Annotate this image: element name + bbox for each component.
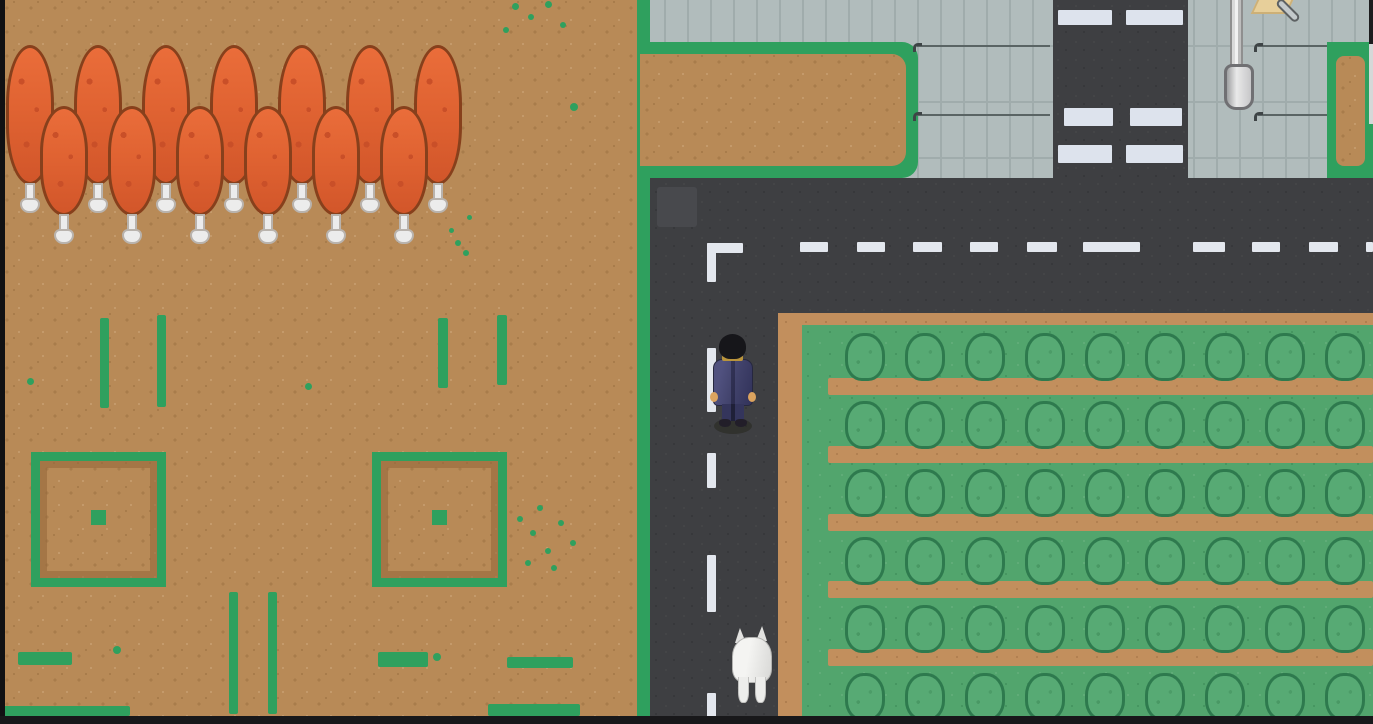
- crop-bush: [1265, 537, 1305, 585]
- pavement-corner-mark: [1254, 112, 1263, 121]
- tree: [312, 106, 360, 248]
- lane-dash: [1252, 242, 1280, 252]
- crop-bush: [845, 537, 885, 585]
- grass-dot: [570, 540, 576, 546]
- grass-tuft: [268, 592, 277, 714]
- lane-dash: [1309, 242, 1338, 252]
- crop-bush: [965, 333, 1005, 381]
- crop-bush: [1085, 537, 1125, 585]
- crop-bush: [905, 605, 945, 653]
- dog-leg-right: [755, 677, 766, 703]
- crop-bush: [1205, 469, 1245, 517]
- crop-bush: [1205, 673, 1245, 721]
- grass-dot: [570, 103, 578, 111]
- pavement-seam: [917, 45, 1050, 47]
- tree-trunk: [20, 183, 40, 215]
- grass-tuft: [378, 652, 428, 667]
- grass-dot: [528, 14, 534, 20]
- crop-bush: [845, 469, 885, 517]
- garden-plot: [372, 452, 507, 587]
- crop-bush: [1025, 469, 1065, 517]
- pavement-corner-mark: [1254, 43, 1263, 52]
- grass-tuft: [497, 315, 507, 385]
- grass-dot: [467, 215, 472, 220]
- tree-trunk: [394, 214, 414, 246]
- tree-canopy: [244, 106, 292, 216]
- lane-dash: [707, 453, 716, 488]
- crop-bush: [1025, 537, 1065, 585]
- crop-bush: [1325, 469, 1365, 517]
- crop-bush: [1205, 401, 1245, 449]
- screen-edge-bottom: [0, 716, 1373, 724]
- tree-trunk: [190, 214, 210, 246]
- crop-bush: [965, 401, 1005, 449]
- crosswalk-stripe: [1126, 10, 1183, 25]
- player-shoe-left: [719, 419, 731, 427]
- grass-dot: [113, 646, 121, 654]
- lane-dash: [1366, 242, 1373, 252]
- crosswalk-stripe: [1126, 145, 1183, 163]
- player-body: [713, 359, 753, 406]
- grass-tuft: [438, 318, 448, 388]
- lane-line-corner: [707, 243, 716, 282]
- plaza-grass-dirt: [1336, 56, 1365, 166]
- crop-bush: [1265, 605, 1305, 653]
- grass-dot: [545, 1, 552, 8]
- crop-bush: [845, 605, 885, 653]
- grass-dot: [545, 548, 551, 554]
- tree-trunk: [292, 183, 312, 215]
- grass-tuft: [100, 318, 109, 408]
- tree-trunk: [224, 183, 244, 215]
- player-shoe-right: [735, 419, 747, 427]
- dog-sprite[interactable]: [730, 626, 774, 704]
- crop-bush: [1085, 605, 1125, 653]
- player-sprite[interactable]: [711, 334, 755, 436]
- crop-bush: [845, 401, 885, 449]
- tree-trunk: [428, 183, 448, 215]
- crop-bush: [1145, 333, 1185, 381]
- grass-tuft: [488, 704, 580, 716]
- tree-canopy: [108, 106, 156, 216]
- crop-bush: [965, 469, 1005, 517]
- tree: [380, 106, 428, 248]
- screen-edge-right-dark: [1369, 0, 1373, 44]
- grass-dot: [27, 378, 34, 385]
- lane-dash: [1027, 242, 1057, 252]
- grass-dot: [449, 228, 454, 233]
- crop-bush: [1205, 537, 1245, 585]
- crop-bush: [1325, 673, 1365, 721]
- crop-bush: [1265, 673, 1305, 721]
- crop-bush: [1205, 333, 1245, 381]
- grass-dot: [560, 22, 566, 28]
- grass-dot: [525, 560, 531, 566]
- grass-dot: [463, 250, 469, 256]
- tree-trunk: [326, 214, 346, 246]
- lane-dash: [857, 242, 885, 252]
- tree-canopy: [176, 106, 224, 216]
- lane-dash: [913, 242, 942, 252]
- crop-bush: [845, 333, 885, 381]
- grass-dot: [537, 505, 543, 511]
- grass-dot: [517, 516, 523, 522]
- grass-dot: [305, 383, 312, 390]
- crop-bush: [965, 537, 1005, 585]
- tree: [108, 106, 156, 248]
- crop-bush: [1085, 673, 1125, 721]
- crosswalk-stripe: [1058, 10, 1112, 25]
- tree: [40, 106, 88, 248]
- lane-dash: [800, 242, 828, 252]
- tree-trunk: [156, 183, 176, 215]
- crop-bush: [1145, 537, 1185, 585]
- tree-canopy: [380, 106, 428, 216]
- crop-bush: [1265, 401, 1305, 449]
- crop-bush: [1025, 401, 1065, 449]
- screen-edge-right-light: [1369, 44, 1373, 124]
- grass-dot: [551, 565, 557, 571]
- pavement-seam: [917, 114, 1050, 116]
- crop-bush: [1325, 401, 1365, 449]
- grass-dot: [512, 3, 519, 10]
- crop-bush: [1325, 333, 1365, 381]
- crop-bush: [905, 537, 945, 585]
- game-viewport: [0, 0, 1373, 724]
- crop-bush: [1145, 673, 1185, 721]
- crop-bush: [965, 673, 1005, 721]
- crop-bush: [1085, 401, 1125, 449]
- grass-dot: [503, 27, 509, 33]
- grass-tuft: [229, 592, 238, 714]
- dirt-path: [637, 42, 918, 178]
- plot-center-dot: [432, 510, 447, 525]
- player-hand-right: [748, 392, 756, 402]
- farm-border-left: [778, 313, 802, 724]
- lamp-base: [1224, 64, 1254, 110]
- crop-bush: [1025, 673, 1065, 721]
- grass-dot: [455, 240, 461, 246]
- crop-bush: [1025, 333, 1065, 381]
- grass-tuft: [0, 706, 130, 716]
- tree-trunk: [88, 183, 108, 215]
- crop-bush: [1085, 469, 1125, 517]
- lane-dash: [1083, 242, 1140, 252]
- crop-bush: [1025, 605, 1065, 653]
- pavement-corner-mark: [913, 112, 922, 121]
- crop-bush: [1205, 605, 1245, 653]
- crop-bush: [1325, 605, 1365, 653]
- crop-bush: [905, 469, 945, 517]
- lane-dash: [707, 555, 716, 612]
- tree-canopy: [312, 106, 360, 216]
- crop-bush: [1265, 333, 1305, 381]
- lamp-post: [1224, 0, 1254, 110]
- tree-trunk: [122, 214, 142, 246]
- crosswalk-stripe: [1064, 108, 1113, 126]
- crop-bush: [845, 673, 885, 721]
- pavement-seam: [1258, 45, 1327, 47]
- grass-dot: [530, 530, 536, 536]
- lamp-pole: [1230, 0, 1243, 68]
- crop-bush: [1145, 469, 1185, 517]
- plaza-grass-patch: [1327, 42, 1373, 178]
- road-light-patch: [657, 187, 697, 227]
- grass-tuft: [157, 315, 166, 407]
- crop-bush: [1145, 401, 1185, 449]
- tree-trunk: [54, 214, 74, 246]
- grass-tuft: [507, 657, 573, 668]
- tree-canopy: [40, 106, 88, 216]
- grass-dot: [433, 653, 441, 661]
- pavement-corner-mark: [913, 43, 922, 52]
- crop-bush: [1265, 469, 1305, 517]
- dog-leg-left: [738, 677, 749, 703]
- tree: [244, 106, 292, 248]
- pavement-seam: [1258, 114, 1327, 116]
- crosswalk-stripe: [1130, 108, 1182, 126]
- crop-bush: [1085, 333, 1125, 381]
- crop-bush: [905, 673, 945, 721]
- crop-bush: [1325, 537, 1365, 585]
- tree: [176, 106, 224, 248]
- dirt-path-surface: [640, 54, 906, 166]
- plot-center-dot: [91, 510, 106, 525]
- grass-fringe-road-edge: [637, 164, 650, 716]
- crop-bush: [965, 605, 1005, 653]
- grass-dot: [558, 520, 564, 526]
- grass-tuft: [18, 652, 72, 665]
- player-hand-left: [710, 392, 718, 402]
- tree-trunk: [360, 183, 380, 215]
- crop-bush: [905, 401, 945, 449]
- crosswalk-stripe: [1058, 145, 1112, 163]
- player-hair: [719, 334, 746, 359]
- screen-edge-left: [0, 0, 5, 724]
- crop-bush: [905, 333, 945, 381]
- lane-dash: [970, 242, 998, 252]
- lane-dash: [1193, 242, 1225, 252]
- tree-trunk: [258, 214, 278, 246]
- crop-bush: [1145, 605, 1185, 653]
- garden-plot: [31, 452, 166, 587]
